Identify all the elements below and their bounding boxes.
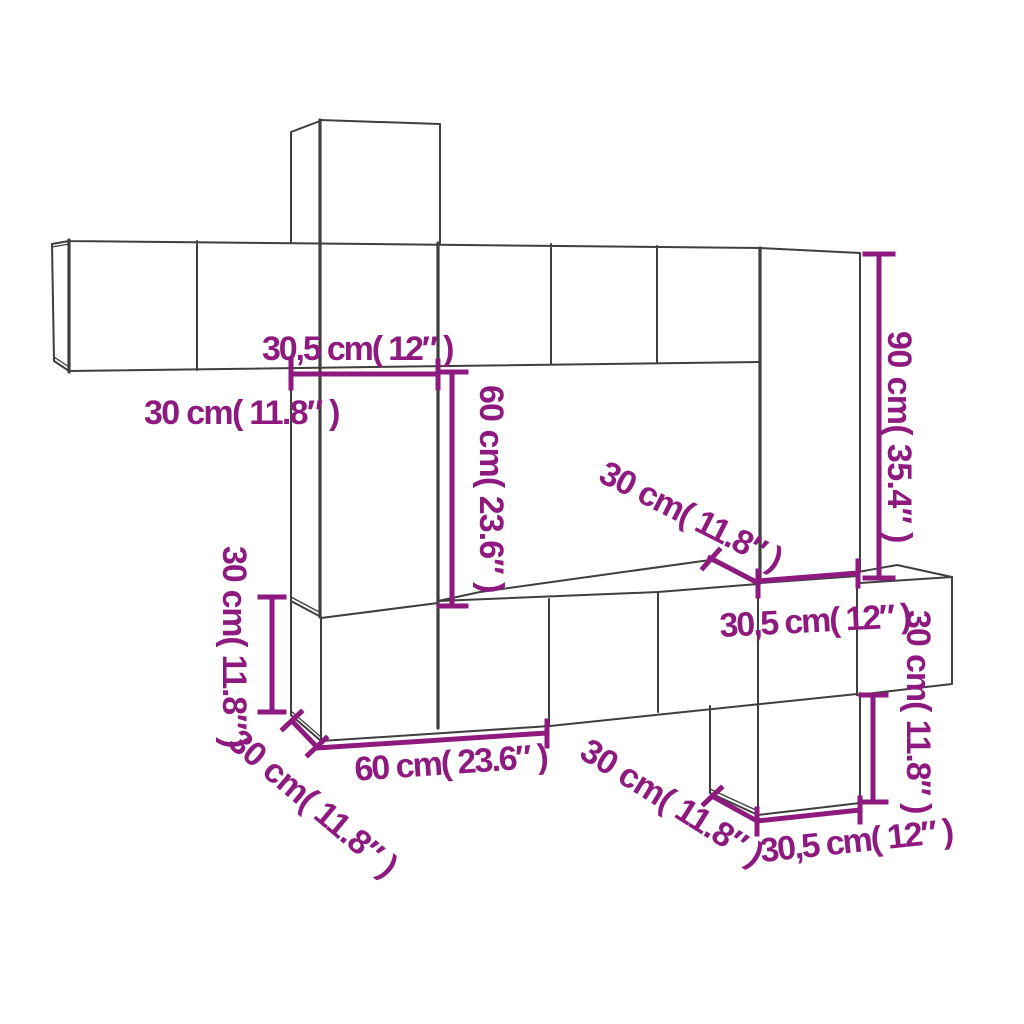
right-column-outline [760,248,860,583]
dim-label-right-middle-width: 30,5 cm( 12″ ) [719,597,913,645]
dim-label-top-width: 30,5 cm( 12″ ) [262,330,454,368]
furniture-dimension-diagram: 30,5 cm( 12″ ) 30 cm( 11.8″ ) 60 cm( 23.… [0,0,1024,1024]
dim-label-left-height: 30 cm( 11.8″ ) [215,546,253,748]
dim-line-left-height [260,597,284,712]
dim-line-center-height [440,372,466,606]
dim-label-upper-left-depth: 30 cm( 11.8″ ) [144,394,340,432]
dim-line-far-right-height [861,695,886,802]
dim-label-far-right-height: 30 cm( 11.8″ ) [899,610,937,814]
dim-label-bottom-left-depth: 30 cm( 11.8″ ) [221,722,405,885]
diagram-canvas: 30,5 cm( 12″ ) 30 cm( 11.8″ ) 60 cm( 23.… [0,0,1024,1024]
bottom-right-cabinet-outline [710,693,860,815]
dim-label-center-height: 60 cm( 23.6″ ) [472,385,510,593]
dim-label-right-height: 90 cm( 35.4″ ) [880,331,918,543]
top-box-outline [291,120,440,243]
dim-label-bottom-right-width: 30,5 cm( 12″ ) [758,812,955,870]
